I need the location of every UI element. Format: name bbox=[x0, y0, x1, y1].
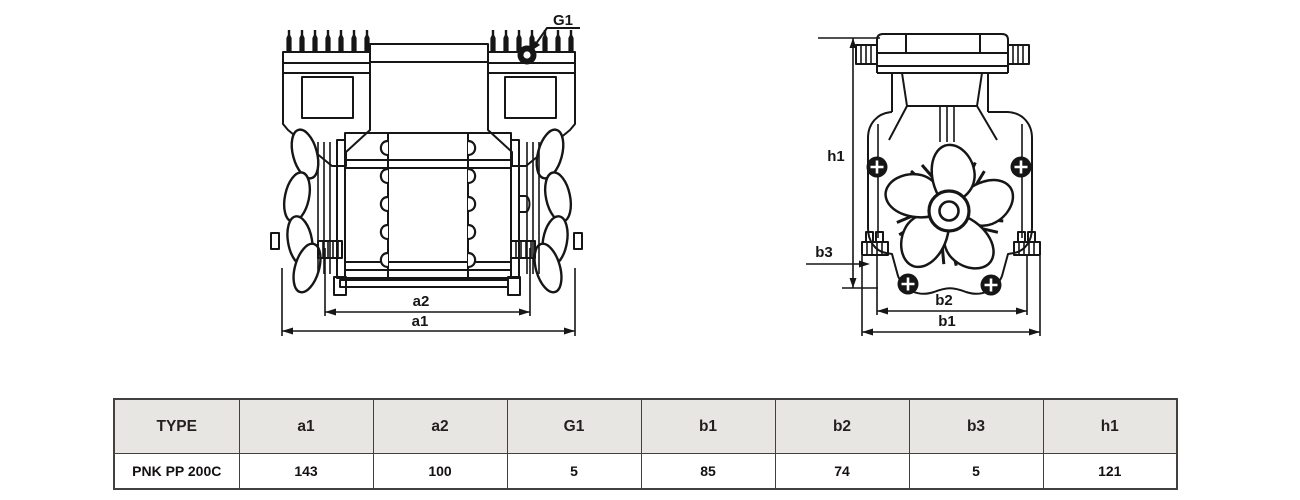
dim-label-b1: b1 bbox=[938, 313, 956, 330]
dim-label-a2: a2 bbox=[413, 293, 430, 310]
dim-label-a1: a1 bbox=[412, 313, 429, 330]
col-header-b1: b1 bbox=[641, 399, 775, 454]
front-view-diagram: G1 bbox=[271, 12, 582, 336]
technical-drawing: G1 bbox=[0, 0, 1300, 392]
col-header-g1: G1 bbox=[507, 399, 641, 454]
cell-g1: 5 bbox=[507, 454, 641, 490]
compressor-spec-sheet: G1 bbox=[0, 0, 1300, 500]
motor-stator bbox=[337, 133, 530, 278]
head-cap bbox=[856, 34, 1029, 73]
dimension-a2: a2 bbox=[325, 248, 530, 316]
dimension-b3: b3 bbox=[806, 244, 870, 268]
cell-a2: 100 bbox=[373, 454, 507, 490]
cell-b3: 5 bbox=[909, 454, 1043, 490]
cell-type: PNK PP 200C bbox=[114, 454, 239, 490]
head-bridge bbox=[370, 44, 488, 62]
cell-b1: 85 bbox=[641, 454, 775, 490]
cell-b2: 74 bbox=[775, 454, 909, 490]
fan bbox=[879, 141, 1013, 277]
cell-a1: 143 bbox=[239, 454, 373, 490]
dim-label-g1: G1 bbox=[553, 12, 573, 29]
table-row: PNK PP 200C 143 100 5 85 74 5 121 bbox=[114, 454, 1177, 490]
side-view-diagram: h1 b3 b2 b1 bbox=[806, 34, 1040, 336]
col-header-b3: b3 bbox=[909, 399, 1043, 454]
dim-label-b3: b3 bbox=[815, 244, 833, 261]
col-header-b2: b2 bbox=[775, 399, 909, 454]
cell-h1: 121 bbox=[1043, 454, 1177, 490]
col-header-a2: a2 bbox=[373, 399, 507, 454]
col-header-a1: a1 bbox=[239, 399, 373, 454]
table-header-row: TYPE a1 a2 G1 b1 b2 b3 h1 bbox=[114, 399, 1177, 454]
col-header-h1: h1 bbox=[1043, 399, 1177, 454]
dim-label-h1: h1 bbox=[827, 148, 845, 165]
cooling-fins-left-head bbox=[286, 30, 369, 52]
dimension-table: TYPE a1 a2 G1 b1 b2 b3 h1 PNK PP 200C 14… bbox=[113, 398, 1178, 490]
col-header-type: TYPE bbox=[114, 399, 239, 454]
cylinder-block bbox=[889, 73, 997, 142]
dim-label-b2: b2 bbox=[935, 292, 953, 309]
